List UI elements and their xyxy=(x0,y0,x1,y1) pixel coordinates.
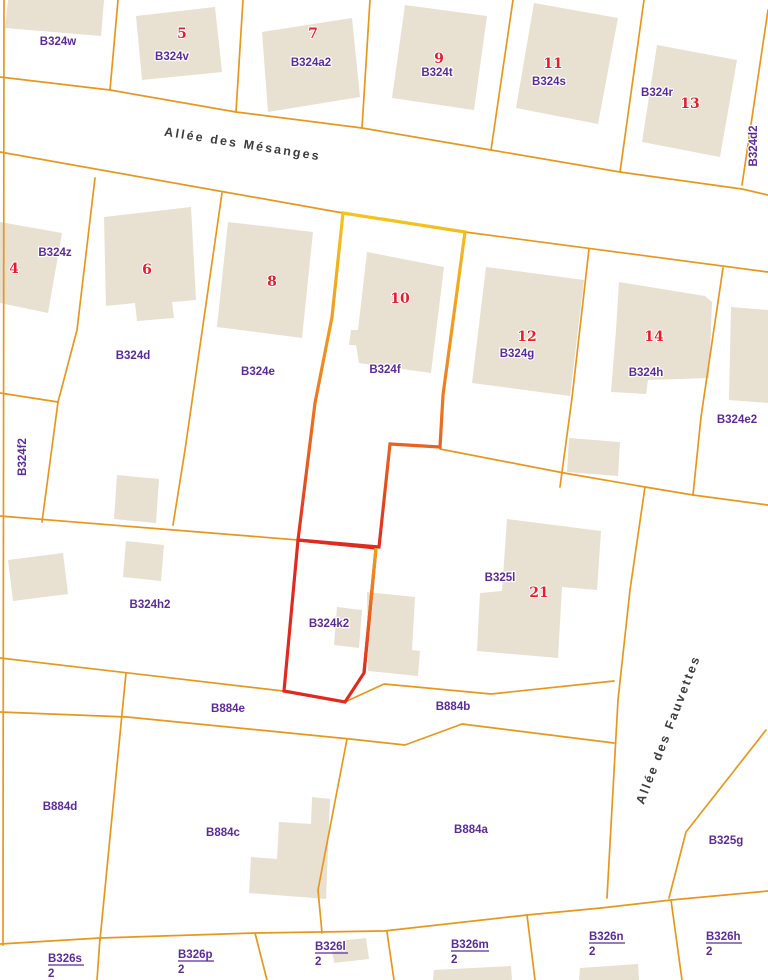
parcel-label: B884c xyxy=(206,827,240,839)
parcel-label: B324f2 xyxy=(17,438,29,476)
parcel-label: B324g xyxy=(500,348,535,360)
building xyxy=(433,966,512,980)
building xyxy=(729,307,768,403)
parcel-label: B324z xyxy=(38,247,71,259)
house-number: 11 xyxy=(543,56,562,72)
house-number: 14 xyxy=(644,329,664,345)
fraction-label: B326h 2 xyxy=(706,931,742,958)
house-number: 5 xyxy=(177,26,187,42)
parcel-label: B324d2 xyxy=(748,126,760,167)
parcel-label: B325l xyxy=(485,572,516,584)
building xyxy=(5,0,104,36)
parcel-label: B324s xyxy=(532,76,566,88)
cadastral-map[interactable]: Allée des Mésanges Allée des Fauvettes B… xyxy=(0,0,768,980)
fraction-denominator: 2 xyxy=(48,968,54,980)
fraction-label: B326n 2 xyxy=(589,931,625,958)
street-name: Allée des Mésanges xyxy=(163,125,322,164)
building xyxy=(567,438,620,476)
parcel-label: B324h xyxy=(629,367,664,379)
house-number: 9 xyxy=(434,51,444,67)
fraction-numerator: B326n xyxy=(589,931,624,943)
fraction-denominator: 2 xyxy=(451,954,457,966)
street-name: Allée des Fauvettes xyxy=(633,653,703,806)
fraction-numerator: B326p xyxy=(178,949,213,961)
building xyxy=(249,797,330,899)
parcel-label: B324e2 xyxy=(717,414,757,426)
parcel-label: B324d xyxy=(116,350,151,362)
fraction-denominator: 2 xyxy=(589,946,595,958)
building xyxy=(349,252,444,373)
house-number: 6 xyxy=(142,262,152,278)
parcel-label: B884e xyxy=(211,703,245,715)
building xyxy=(8,553,68,601)
building xyxy=(136,7,222,80)
parcel-labels: B324w B324v B324a2 B324t B324s B324r B32… xyxy=(17,36,760,847)
house-number: 13 xyxy=(680,96,699,112)
house-number: 21 xyxy=(529,585,548,601)
building xyxy=(579,964,639,980)
parcel-label: B324v xyxy=(155,51,189,63)
house-number: 10 xyxy=(390,291,410,307)
parcel-label: B324e xyxy=(241,366,275,378)
parcel-label: B324w xyxy=(40,36,76,48)
fraction-denominator: 2 xyxy=(315,956,321,968)
cadastral-map-canvas[interactable]: Allée des Mésanges Allée des Fauvettes B… xyxy=(0,0,768,980)
fraction-label: B326s 2 xyxy=(48,953,84,980)
house-number: 4 xyxy=(9,261,19,277)
fraction-numerator: B326h xyxy=(706,931,741,943)
parcel-label: B325g xyxy=(709,835,744,847)
parcel-label: B324a2 xyxy=(291,57,331,69)
house-number: 8 xyxy=(267,274,277,290)
fraction-numerator: B326s xyxy=(48,953,82,965)
building xyxy=(114,475,159,523)
parcel-label: B324r xyxy=(641,87,673,99)
building xyxy=(516,3,618,124)
house-number: 7 xyxy=(308,26,318,42)
parcel-label: B884d xyxy=(43,801,78,813)
parcel-label: B324h2 xyxy=(130,599,171,611)
parcel-label: B884a xyxy=(454,824,488,836)
fraction-denominator: 2 xyxy=(178,964,184,976)
parcel-label: B324t xyxy=(421,67,452,79)
parcel-label: B884b xyxy=(436,701,471,713)
fraction-numerator: B326l xyxy=(315,941,346,953)
building xyxy=(217,222,313,338)
fraction-label: B326m 2 xyxy=(451,939,489,966)
building xyxy=(123,541,164,581)
parcel-label: B324f xyxy=(369,364,400,376)
fraction-label: B326p 2 xyxy=(178,949,214,976)
fraction-numerator: B326m xyxy=(451,939,489,951)
parcel-label: B324k2 xyxy=(309,618,349,630)
building xyxy=(367,592,420,676)
house-number: 12 xyxy=(517,329,536,345)
fraction-denominator: 2 xyxy=(706,946,712,958)
